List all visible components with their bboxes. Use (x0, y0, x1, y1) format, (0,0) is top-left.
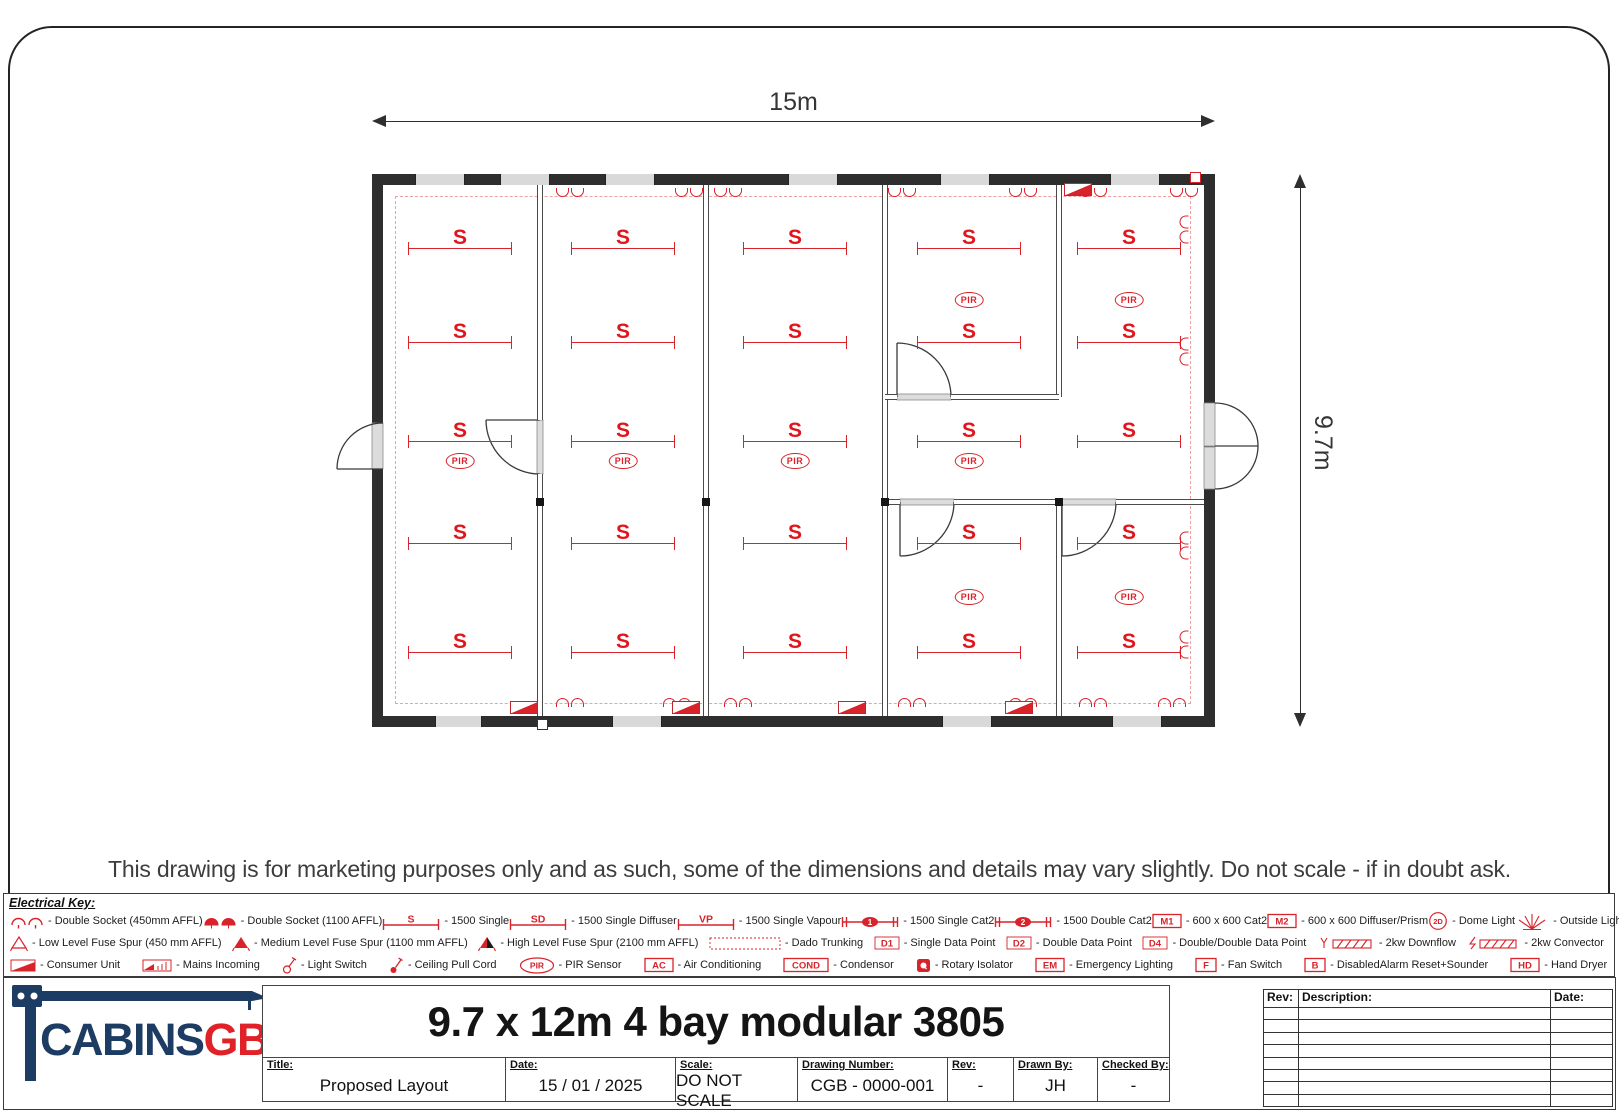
floor-plan: SSSSSSSSSSSSSSSSSSSSSSSSSPIRPIRPIRPIRPIR… (372, 174, 1215, 727)
dimension-width-label: 15m (372, 88, 1215, 117)
key-item: - 2kw Convector (1466, 935, 1603, 951)
key-item: - Dado Trunking (709, 936, 863, 951)
revision-table-rows (1264, 1008, 1612, 1106)
light-1500-single-symbol: S (408, 231, 512, 257)
svg-text:PIR: PIR (529, 960, 543, 970)
svg-text:2: 2 (1021, 918, 1026, 927)
left-door-threshold (372, 423, 383, 469)
double-socket-symbol (555, 188, 585, 197)
electrical-key-title: Electrical Key: (4, 894, 1614, 910)
key-item: HD- Hand Dryer (1510, 957, 1607, 973)
key-item-label: - Single Data Point (904, 937, 996, 949)
spur-dark-icon (478, 935, 496, 952)
double-socket-symbol (674, 188, 704, 197)
pir-icon: PIR (519, 957, 555, 974)
key-item-label: - Low Level Fuse Spur (450 mm AFFL) (32, 937, 222, 949)
revision-header-cell: Date: (1551, 990, 1610, 1007)
double-socket-symbol (1180, 630, 1189, 660)
consumer-unit-symbol (510, 701, 538, 714)
socket-filled-icon (203, 913, 237, 929)
svg-text:B: B (1312, 961, 1319, 972)
key-item: M2- 600 x 600 Diffuser/Prism (1267, 913, 1428, 929)
dtag-icon: D4 (1142, 935, 1168, 951)
field-label: Scale: (676, 1058, 797, 1071)
key-item: SD- 1500 Single Diffuser (509, 913, 677, 930)
internal-wall (885, 394, 897, 400)
revision-cell (1551, 1020, 1610, 1031)
svg-text:AC: AC (652, 961, 666, 972)
double-socket-symbol (1180, 215, 1189, 245)
light-1500-single-symbol: S (1077, 231, 1181, 257)
switch-icon (282, 956, 297, 974)
revision-cell (1299, 1020, 1551, 1031)
field-label: Drawing Number: (798, 1058, 947, 1071)
key-item-label: - Mains Incoming (176, 959, 260, 971)
spur-filled-icon (232, 935, 250, 952)
revision-row (1264, 1070, 1612, 1082)
key-item: M1- 600 x 600 Cat2 (1152, 913, 1267, 929)
pir-sensor-symbol: PIR (781, 453, 810, 469)
dado-trunking-line (395, 196, 1191, 704)
pir-sensor-symbol: PIR (955, 453, 984, 469)
key-item: - Consumer Unit (10, 958, 120, 972)
internal-wall (954, 499, 1062, 505)
strip-icon: VP (677, 913, 735, 930)
light-1500-single-symbol: S (917, 325, 1021, 351)
pir-sensor-symbol: PIR (1115, 292, 1144, 308)
key-item-label: - Double/Double Data Point (1172, 937, 1306, 949)
room-bottom-right-door-threshold (1062, 499, 1116, 505)
pir-sensor-symbol: PIR (1115, 589, 1144, 605)
revision-row (1264, 1082, 1612, 1094)
module-joint-marker (881, 498, 889, 506)
light-1500-single-symbol: S (743, 325, 847, 351)
key-item-label: - Light Switch (301, 959, 367, 971)
window (940, 174, 990, 185)
key-item-label: - 1500 Single Vapour (739, 915, 842, 927)
revision-cell (1264, 1058, 1299, 1069)
svg-text:VP: VP (699, 913, 713, 925)
key-item-label: - Double Socket (450mm AFFL) (48, 915, 203, 927)
field-rev: Rev:- (947, 1058, 1013, 1101)
consumer-unit-symbol (672, 701, 700, 714)
field-checked-by: Checked By:- (1097, 1058, 1169, 1101)
pir-sensor-symbol: PIR (955, 292, 984, 308)
key-item: - Medium Level Fuse Spur (1100 mm AFFL) (232, 935, 468, 952)
field-value: JH (1014, 1071, 1097, 1101)
revision-cell (1299, 1008, 1551, 1019)
consumer-unit-symbol (838, 701, 866, 714)
revision-cell (1264, 1082, 1299, 1093)
logo-text: CABINSGB (40, 1014, 268, 1066)
mains-icon (142, 958, 172, 972)
light-1500-single-symbol: S (743, 526, 847, 552)
window (500, 174, 550, 185)
revision-header-cell: Description: (1299, 990, 1551, 1007)
key-item-label: - 1500 Single Diffuser (571, 915, 677, 927)
key-item-label: - Dome Light (1452, 915, 1515, 927)
light-1500-single-symbol: S (917, 526, 1021, 552)
key-item-label: - Dado Trunking (785, 937, 863, 949)
pir-sensor-symbol: PIR (609, 453, 638, 469)
key-item-label: - DisabledAlarm Reset+Sounder (1330, 959, 1488, 971)
module-joint-marker (702, 498, 710, 506)
field-value: DO NOT SCALE (676, 1071, 797, 1111)
svg-text:SD: SD (531, 913, 546, 925)
field-title: Title:Proposed Layout (263, 1058, 505, 1101)
key-item: - Outside Light (1515, 913, 1619, 930)
partition-wall (1056, 185, 1062, 397)
light-1500-single-symbol: S (408, 424, 512, 450)
field-label: Drawn By: (1014, 1058, 1097, 1071)
revision-cell (1551, 1058, 1610, 1069)
key-item: - Ceiling Pull Cord (389, 956, 497, 974)
light-1500-single-symbol: S (571, 231, 675, 257)
downflow-icon (1317, 935, 1375, 951)
key-item-label: - High Level Fuse Spur (2100 mm AFFL) (500, 937, 698, 949)
svg-text:1: 1 (868, 918, 873, 927)
light-1500-single-symbol: S (571, 635, 675, 661)
key-item-label: - Rotary Isolator (935, 959, 1013, 971)
consumer-unit-symbol (1064, 183, 1092, 196)
revision-cell (1551, 1070, 1610, 1081)
double-socket-symbol (1180, 531, 1189, 561)
strip-icon: SD (509, 913, 567, 930)
key-item-label: - 1500 Single Cat2 (903, 915, 994, 927)
partition1-door-threshold (537, 420, 543, 474)
double-socket-symbol (1169, 188, 1199, 197)
double-door-threshold-bottom (1204, 447, 1215, 489)
window (435, 716, 482, 727)
company-logo: CABINSGB (12, 983, 264, 1105)
dado-icon (709, 936, 781, 951)
key-item-label: - Outside Light (1553, 915, 1619, 927)
revision-cell (1299, 1058, 1551, 1069)
light-1500-single-symbol: S (1077, 635, 1181, 661)
revision-cell (1551, 1008, 1610, 1019)
svg-text:M2: M2 (1276, 917, 1289, 928)
key-item-label: - Double Data Point (1036, 937, 1132, 949)
key-item: 2- 1500 Double Cat2 (994, 913, 1151, 930)
double-socket-symbol (1180, 337, 1189, 367)
key-item-label: - 600 x 600 Cat2 (1186, 915, 1267, 927)
socket-outline-icon (10, 913, 44, 929)
revision-table: Rev:Description:Date: (1263, 989, 1613, 1107)
revision-row (1264, 1020, 1612, 1032)
module-joint-marker (536, 498, 544, 506)
svg-text:EM: EM (1043, 961, 1057, 972)
light-1500-single-symbol: S (1077, 424, 1181, 450)
revision-row (1264, 1033, 1612, 1045)
rays-icon (1515, 913, 1549, 930)
key-item-label: - 1500 Single (444, 915, 509, 927)
light-1500-single-symbol: S (571, 325, 675, 351)
key-item-label: - 1500 Double Cat2 (1056, 915, 1151, 927)
key-item: - 2kw Downflow (1317, 935, 1456, 951)
window (612, 716, 662, 727)
field-drawing-number: Drawing Number:CGB - 0000-001 (797, 1058, 947, 1101)
box-icon: HD (1510, 957, 1540, 973)
light-1500-single-symbol: S (1077, 526, 1181, 552)
key-item-label: - Ceiling Pull Cord (408, 959, 497, 971)
key-item-label: - Air Conditioning (678, 959, 762, 971)
field-label: Rev: (948, 1058, 1013, 1071)
key-item-label: - 2kw Convector (1524, 937, 1603, 949)
key-item: 1- 1500 Single Cat2 (841, 913, 994, 930)
revision-cell (1551, 1095, 1610, 1106)
double-socket-symbol (555, 698, 585, 707)
double-socket-symbol (897, 698, 927, 707)
partition-wall (537, 474, 543, 716)
light-1500-single-symbol: S (1077, 325, 1181, 351)
strip-oval-icon: 2 (994, 913, 1052, 930)
logo-text-accent: GB (204, 1014, 269, 1065)
partition-wall (537, 185, 543, 420)
light-1500-single-symbol: S (408, 635, 512, 661)
double-door-threshold-top (1204, 403, 1215, 446)
double-socket-symbol (713, 188, 743, 197)
box-icon: COND (783, 957, 829, 973)
window (942, 716, 992, 727)
key-item-label: - Emergency Lighting (1069, 959, 1173, 971)
svg-text:2D: 2D (1433, 917, 1443, 926)
revision-cell (1299, 1082, 1551, 1093)
dtag-icon: D2 (1006, 935, 1032, 951)
light-1500-single-symbol: S (743, 424, 847, 450)
partition-wall (703, 185, 709, 716)
revision-cell (1264, 1033, 1299, 1044)
internal-wall (951, 394, 1059, 400)
key-item: - High Level Fuse Spur (2100 mm AFFL) (478, 935, 698, 952)
service-point-marker (537, 719, 548, 730)
consumer-icon (10, 958, 36, 972)
field-value: Proposed Layout (263, 1071, 505, 1101)
logo-text-primary: CABINS (40, 1014, 204, 1065)
light-1500-single-symbol: S (408, 526, 512, 552)
revision-cell (1299, 1070, 1551, 1081)
revision-table-header: Rev:Description:Date: (1264, 990, 1612, 1008)
field-value: - (1098, 1071, 1169, 1101)
box-icon: EM (1035, 957, 1065, 973)
key-item-label: - 2kw Downflow (1379, 937, 1456, 949)
light-1500-single-symbol: S (917, 231, 1021, 257)
convector-icon (1466, 935, 1520, 951)
title-block: CABINSGB 9.7 x 12m 4 bay modular 3805 Ti… (3, 977, 1616, 1110)
revision-row (1264, 1008, 1612, 1020)
key-item: D4- Double/Double Data Point (1142, 935, 1306, 951)
field-value: 15 / 01 / 2025 (506, 1071, 675, 1101)
key-item: - Low Level Fuse Spur (450 mm AFFL) (10, 935, 222, 952)
svg-text:S: S (408, 913, 415, 925)
window (605, 174, 655, 185)
light-1500-single-symbol: S (917, 635, 1021, 661)
key-item: AC- Air Conditioning (644, 957, 762, 973)
double-socket-symbol (723, 698, 753, 707)
disclaimer-text: This drawing is for marketing purposes o… (0, 856, 1619, 883)
field-label: Date: (506, 1058, 675, 1071)
dtag-icon: D1 (874, 935, 900, 951)
key-item: - Mains Incoming (142, 958, 260, 972)
electrical-key-row-2: - Low Level Fuse Spur (450 mm AFFL)- Med… (4, 932, 1614, 954)
ring-icon: 2D (1428, 911, 1448, 931)
key-item: - Double Socket (450mm AFFL) (10, 913, 203, 929)
revision-cell (1264, 1020, 1299, 1031)
key-item-label: - Double Socket (1100 AFFL) (241, 915, 383, 927)
box-icon: F (1195, 957, 1217, 973)
key-item-label: - Hand Dryer (1544, 959, 1607, 971)
key-item-label: - Condensor (833, 959, 894, 971)
light-1500-single-symbol: S (917, 424, 1021, 450)
revision-cell (1551, 1082, 1610, 1093)
strip-oval-icon: 1 (841, 913, 899, 930)
key-item: S- 1500 Single (382, 913, 509, 930)
key-item-label: - 600 x 600 Diffuser/Prism (1301, 915, 1428, 927)
key-item-label: - Fan Switch (1221, 959, 1282, 971)
key-item: B- DisabledAlarm Reset+Sounder (1304, 957, 1488, 973)
key-item: D2- Double Data Point (1006, 935, 1132, 951)
revision-cell (1264, 1095, 1299, 1106)
title-block-fields: Title:Proposed LayoutDate:15 / 01 / 2025… (263, 1057, 1169, 1101)
spur-outline-icon (10, 935, 28, 952)
room-top-door (897, 343, 951, 397)
svg-text:HD: HD (1518, 961, 1532, 972)
field-drawn-by: Drawn By:JH (1013, 1058, 1097, 1101)
key-item: COND- Condensor (783, 957, 894, 973)
key-item: 2D- Dome Light (1428, 911, 1515, 931)
key-item: - Double Socket (1100 AFFL) (203, 913, 383, 929)
key-item: VP- 1500 Single Vapour (677, 913, 842, 930)
field-label: Checked By: (1098, 1058, 1169, 1071)
revision-cell (1551, 1033, 1610, 1044)
electrical-key: Electrical Key: - Double Socket (450mm A… (3, 893, 1615, 977)
pullcord-icon (389, 956, 404, 974)
dimension-width-line (374, 121, 1213, 122)
double-socket-symbol (887, 188, 917, 197)
room-bottom-left-door-threshold (900, 499, 954, 505)
window (788, 174, 838, 185)
field-date: Date:15 / 01 / 2025 (505, 1058, 675, 1101)
svg-text:D2: D2 (1013, 939, 1025, 950)
window (1112, 716, 1162, 727)
pir-sensor-symbol: PIR (955, 589, 984, 605)
key-item-label: - Medium Level Fuse Spur (1100 mm AFFL) (254, 937, 468, 949)
consumer-unit-symbol (1005, 701, 1033, 714)
electrical-key-row-3: - Consumer Unit- Mains Incoming- Light S… (4, 954, 1614, 976)
partition-wall (882, 185, 888, 716)
svg-text:M1: M1 (1160, 917, 1174, 928)
svg-text:F: F (1203, 961, 1209, 972)
key-item: EM- Emergency Lighting (1035, 957, 1173, 973)
room-top-door-threshold (897, 394, 951, 400)
rotary-icon (916, 958, 931, 973)
revision-row (1264, 1058, 1612, 1070)
light-1500-single-symbol: S (571, 526, 675, 552)
key-item: PIR- PIR Sensor (519, 957, 622, 974)
double-socket-symbol (1008, 188, 1038, 197)
key-item-label: - PIR Sensor (559, 959, 622, 971)
revision-row (1264, 1095, 1612, 1106)
box-icon: B (1304, 957, 1326, 973)
field-value: CGB - 0000-001 (798, 1071, 947, 1101)
revision-cell (1264, 1070, 1299, 1081)
field-value: - (948, 1071, 1013, 1101)
dimension-height-line (1300, 176, 1301, 725)
revision-header-cell: Rev: (1264, 990, 1299, 1007)
light-1500-single-symbol: S (571, 424, 675, 450)
svg-text:D4: D4 (1149, 939, 1162, 950)
revision-cell (1299, 1095, 1551, 1106)
revision-cell (1264, 1008, 1299, 1019)
key-item: F- Fan Switch (1195, 957, 1282, 973)
box-icon: AC (644, 957, 674, 973)
field-scale: Scale:DO NOT SCALE (675, 1058, 797, 1101)
key-item-label: - Consumer Unit (40, 959, 120, 971)
light-1500-single-symbol: S (743, 231, 847, 257)
key-item: D1- Single Data Point (874, 935, 996, 951)
key-item: - Rotary Isolator (916, 958, 1013, 973)
box-icon: M2 (1267, 913, 1297, 929)
svg-text:COND: COND (792, 961, 820, 972)
box-icon: M1 (1152, 913, 1182, 929)
dimension-height-label: 9.7m (1308, 415, 1337, 471)
revision-row (1264, 1045, 1612, 1057)
revision-cell (1299, 1033, 1551, 1044)
double-socket-symbol (1157, 698, 1187, 707)
pir-sensor-symbol: PIR (446, 453, 475, 469)
module-joint-marker (1055, 498, 1063, 506)
field-label: Title: (263, 1058, 505, 1071)
partition-wall (1056, 502, 1062, 716)
window (415, 174, 465, 185)
svg-text:D1: D1 (881, 939, 894, 950)
revision-cell (1264, 1045, 1299, 1056)
strip-icon: S (382, 913, 440, 930)
internal-wall (1116, 499, 1204, 505)
light-1500-single-symbol: S (743, 635, 847, 661)
double-socket-symbol (1078, 698, 1108, 707)
light-1500-single-symbol: S (408, 325, 512, 351)
window (1110, 174, 1160, 185)
drawing-title: 9.7 x 12m 4 bay modular 3805 (263, 986, 1169, 1057)
key-item: - Light Switch (282, 956, 367, 974)
title-block-center: 9.7 x 12m 4 bay modular 3805 Title:Propo… (262, 985, 1170, 1102)
revision-cell (1551, 1045, 1610, 1056)
electrical-key-row-1: - Double Socket (450mm AFFL)- Double Soc… (4, 910, 1614, 932)
revision-cell (1299, 1045, 1551, 1056)
isolator-symbol (1190, 172, 1201, 183)
